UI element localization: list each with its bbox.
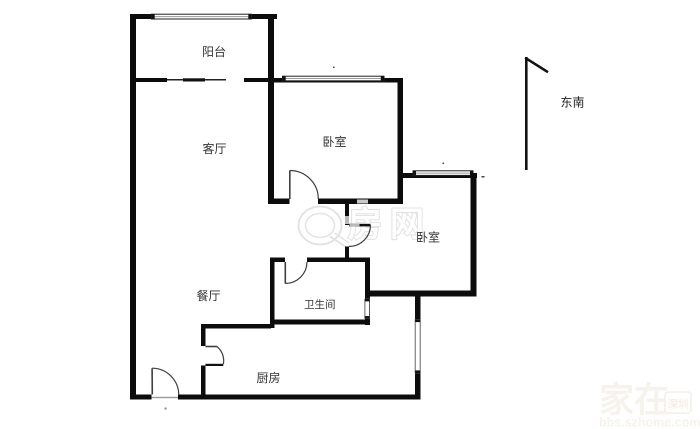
svg-text:客厅: 客厅	[203, 141, 227, 156]
svg-text:bbs.szhome.com: bbs.szhome.com	[599, 416, 700, 429]
svg-text:阳台: 阳台	[202, 44, 226, 59]
svg-text:深圳: 深圳	[668, 398, 689, 411]
svg-text:东南: 东南	[561, 95, 585, 110]
svg-text:卧室: 卧室	[416, 230, 440, 245]
svg-text:厨房: 厨房	[257, 370, 281, 385]
svg-text:卧室: 卧室	[323, 134, 347, 149]
svg-text:卫生间: 卫生间	[304, 298, 336, 311]
svg-text:餐厅: 餐厅	[197, 288, 221, 303]
svg-text:家在: 家在	[599, 381, 669, 420]
